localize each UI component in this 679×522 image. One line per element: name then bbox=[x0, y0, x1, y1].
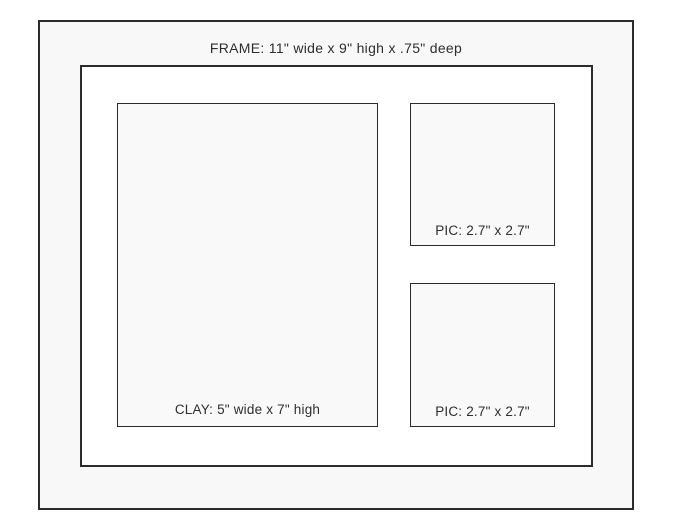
clay-dimensions-label: CLAY: 5" wide x 7" high bbox=[118, 401, 377, 418]
pic-opening-top: PIC: 2.7" x 2.7" bbox=[410, 103, 555, 246]
mat-board: CLAY: 5" wide x 7" high PIC: 2.7" x 2.7"… bbox=[80, 65, 593, 467]
clay-opening: CLAY: 5" wide x 7" high bbox=[117, 103, 378, 427]
frame-outline: FRAME: 11" wide x 9" high x .75" deep CL… bbox=[38, 20, 634, 510]
pic-opening-bottom: PIC: 2.7" x 2.7" bbox=[410, 283, 555, 427]
frame-layout-diagram: FRAME: 11" wide x 9" high x .75" deep CL… bbox=[0, 0, 679, 522]
pic-bottom-dimensions-label: PIC: 2.7" x 2.7" bbox=[411, 403, 554, 420]
frame-dimensions-label: FRAME: 11" wide x 9" high x .75" deep bbox=[40, 40, 632, 57]
pic-top-dimensions-label: PIC: 2.7" x 2.7" bbox=[411, 222, 554, 239]
